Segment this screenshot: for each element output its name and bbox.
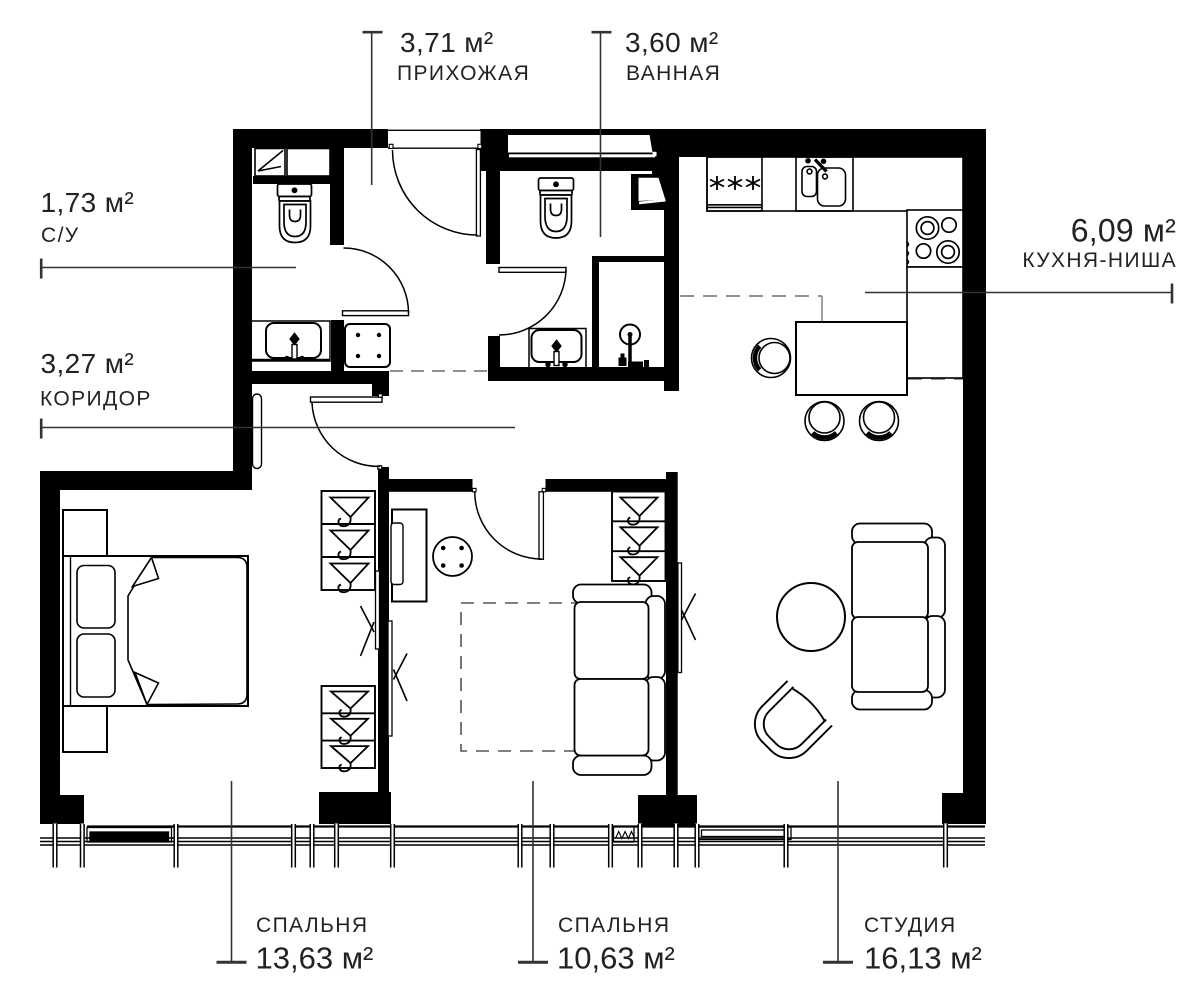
svg-text:3,27 м²: 3,27 м² — [41, 348, 135, 379]
svg-text:10,63 м²: 10,63 м² — [557, 941, 675, 976]
svg-text:КУХНЯ-НИША: КУХНЯ-НИША — [1022, 249, 1177, 272]
svg-text:3,71 м²: 3,71 м² — [400, 27, 494, 58]
svg-text:ВАННАЯ: ВАННАЯ — [626, 62, 721, 85]
svg-text:СТУДИЯ: СТУДИЯ — [864, 914, 957, 937]
svg-text:ПРИХОЖАЯ: ПРИХОЖАЯ — [397, 62, 530, 85]
svg-text:С/У: С/У — [41, 224, 80, 247]
svg-text:13,63 м²: 13,63 м² — [256, 941, 374, 976]
svg-text:6,09 м²: 6,09 м² — [1071, 213, 1176, 249]
svg-text:СПАЛЬНЯ: СПАЛЬНЯ — [256, 914, 368, 937]
svg-text:1,73 м²: 1,73 м² — [41, 187, 135, 218]
svg-text:СПАЛЬНЯ: СПАЛЬНЯ — [558, 914, 670, 937]
svg-text:КОРИДОР: КОРИДОР — [40, 388, 152, 411]
svg-text:16,13 м²: 16,13 м² — [864, 941, 982, 976]
svg-text:3,60 м²: 3,60 м² — [625, 27, 719, 58]
